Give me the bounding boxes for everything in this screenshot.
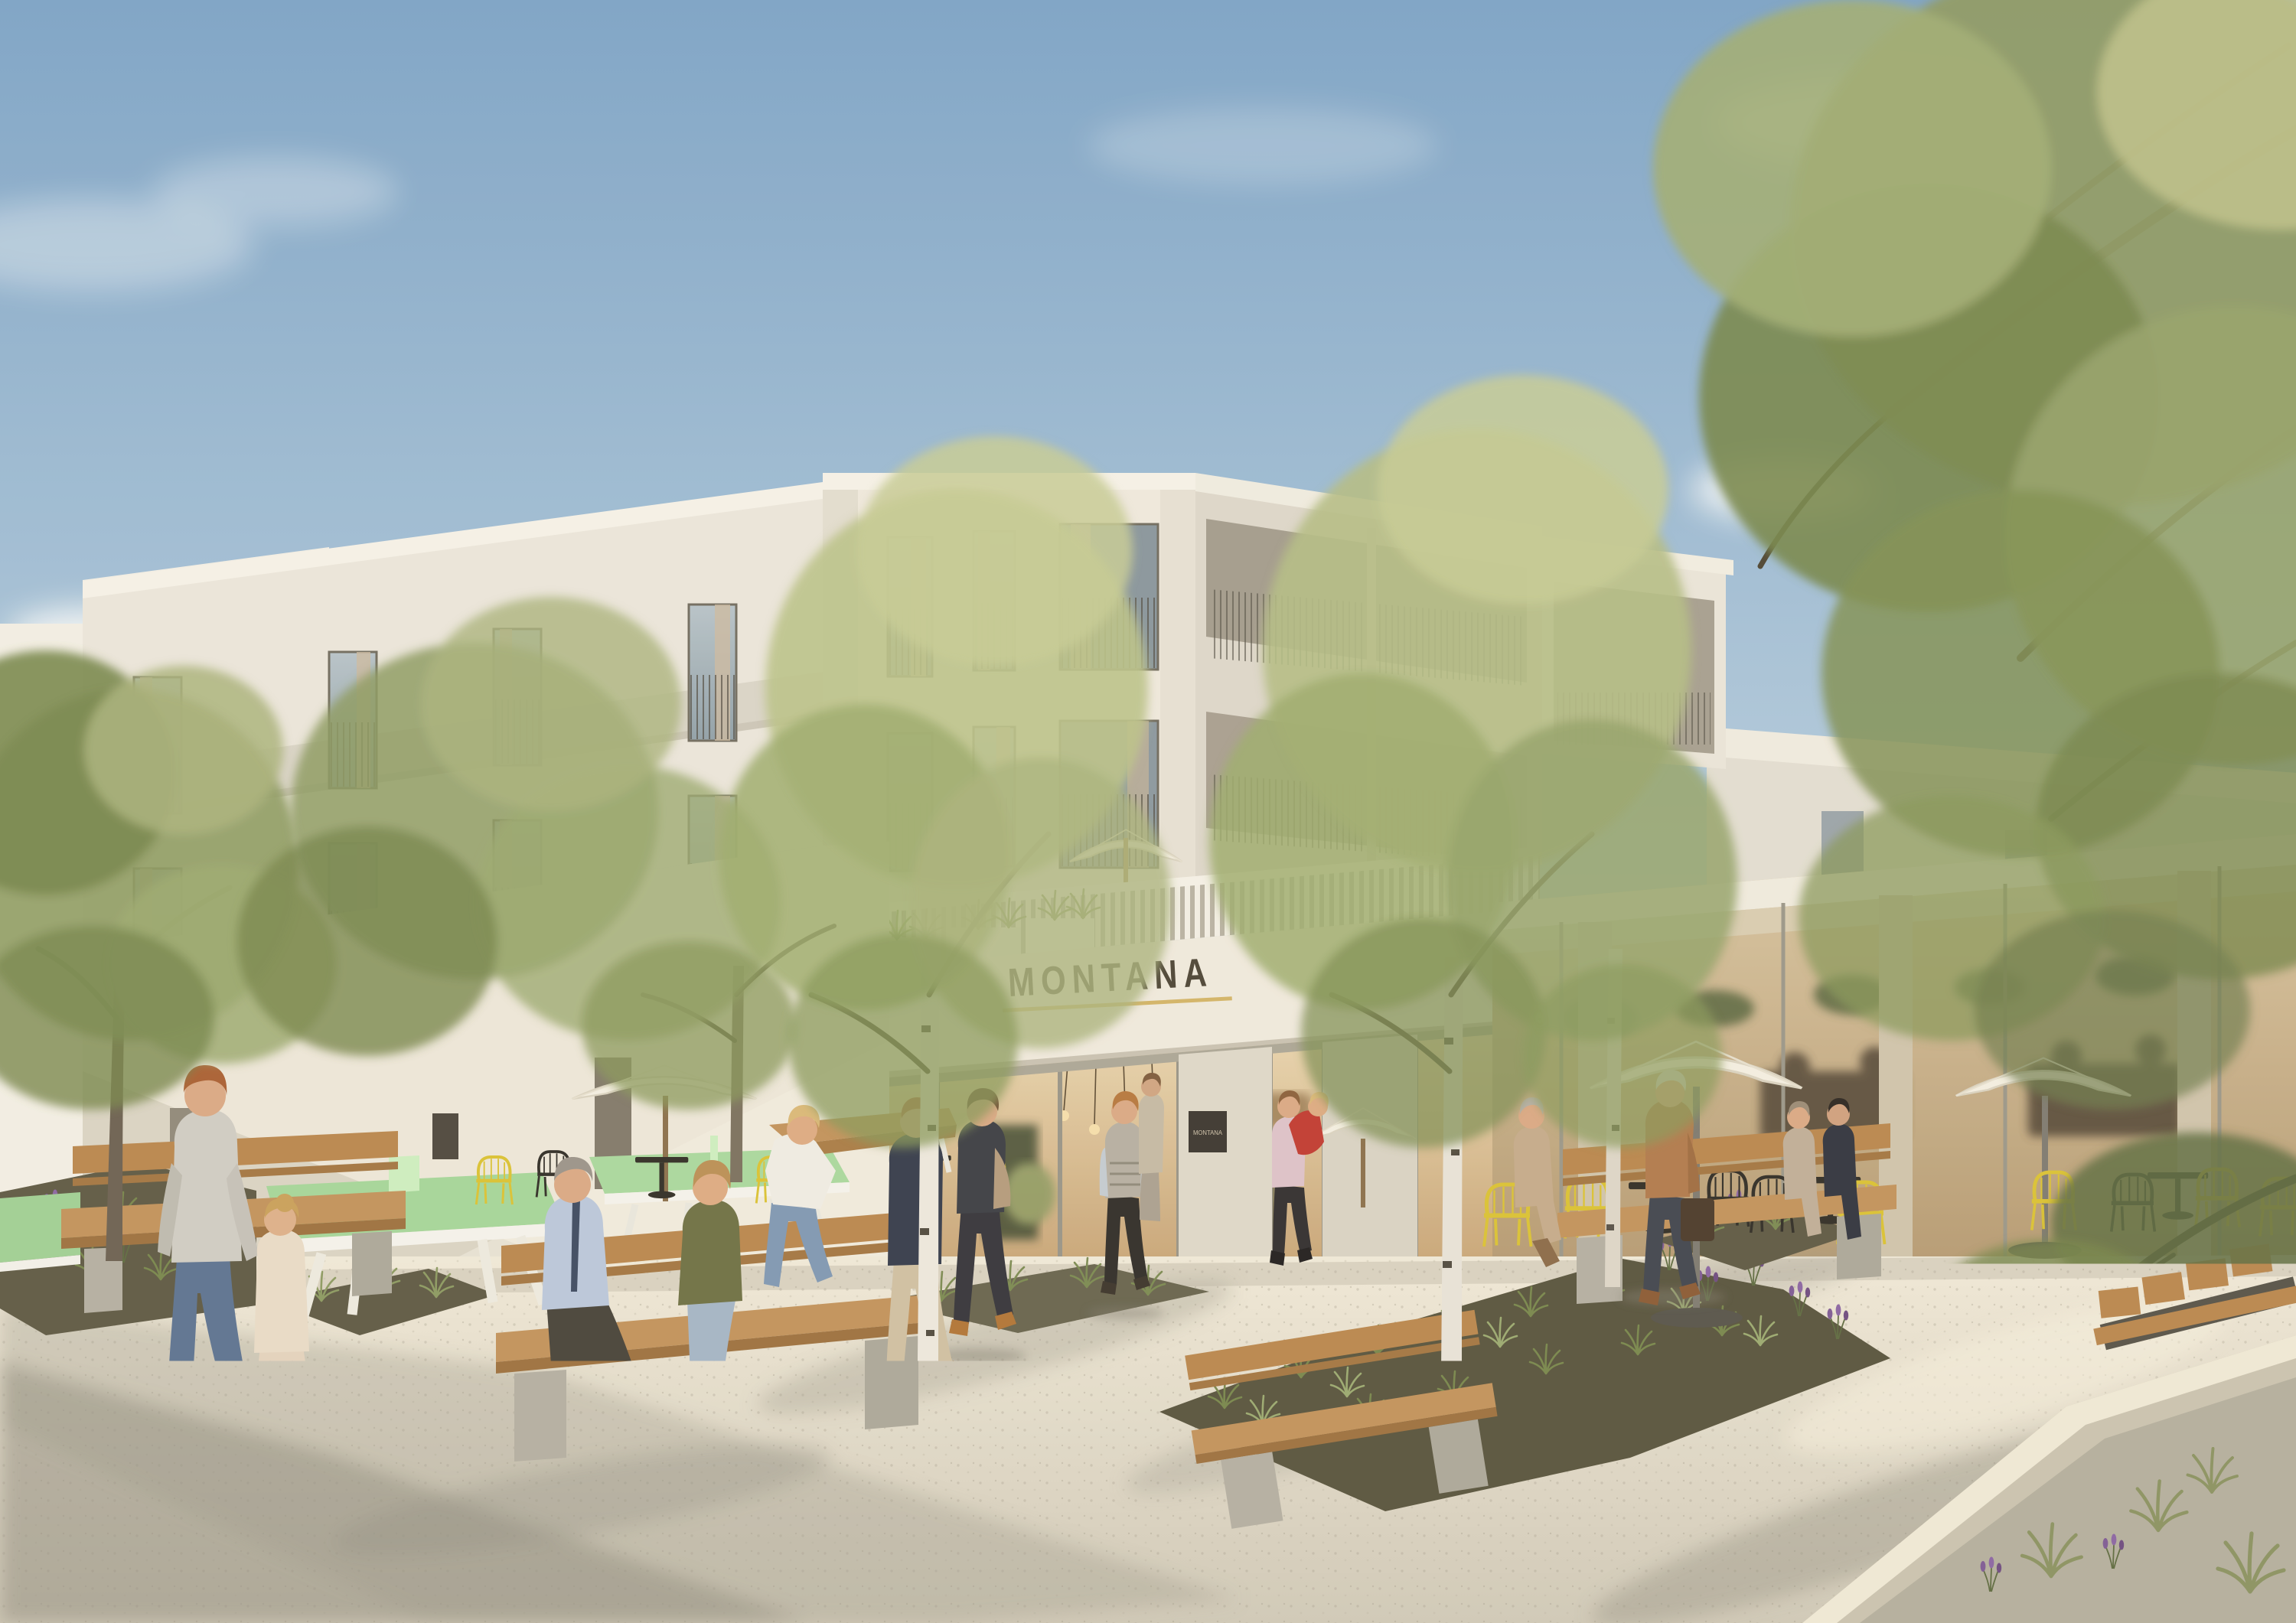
scene-svg: MONTANA	[0, 0, 2296, 1623]
sunlight-wash	[0, 0, 2296, 1623]
rendering-canvas: MONTANA	[0, 0, 2296, 1623]
